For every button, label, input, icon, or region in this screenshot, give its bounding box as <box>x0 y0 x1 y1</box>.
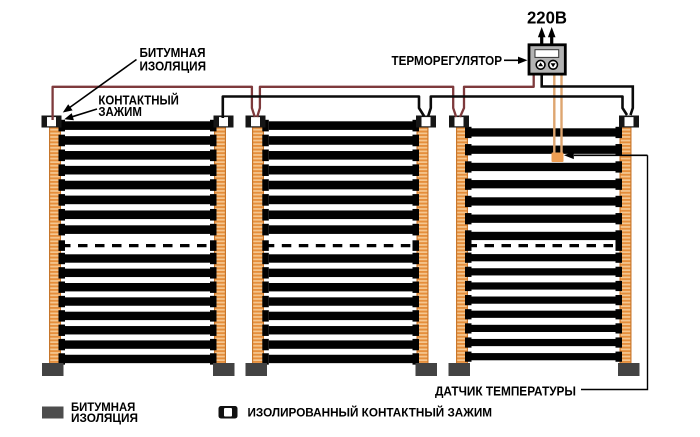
svg-text:БИТУМНАЯ: БИТУМНАЯ <box>71 402 135 414</box>
svg-text:ДАТЧИК ТЕМПЕРАТУРЫ: ДАТЧИК ТЕМПЕРАТУРЫ <box>435 384 576 398</box>
svg-text:ИЗОЛИРОВАННЫЙ КОНТАКТНЫЙ ЗАЖИМ: ИЗОЛИРОВАННЫЙ КОНТАКТНЫЙ ЗАЖИМ <box>248 407 493 420</box>
svg-text:БИТУМНАЯ: БИТУМНАЯ <box>140 46 206 60</box>
svg-text:ИЗОЛЯЦИЯ: ИЗОЛЯЦИЯ <box>140 60 207 74</box>
svg-text:ЗАЖИМ: ЗАЖИМ <box>98 105 141 119</box>
svg-text:ТЕРМОРЕГУЛЯТОР: ТЕРМОРЕГУЛЯТОР <box>392 54 503 68</box>
svg-text:ИЗОЛЯЦИЯ: ИЗОЛЯЦИЯ <box>71 413 138 425</box>
svg-text:220В: 220В <box>527 8 567 28</box>
